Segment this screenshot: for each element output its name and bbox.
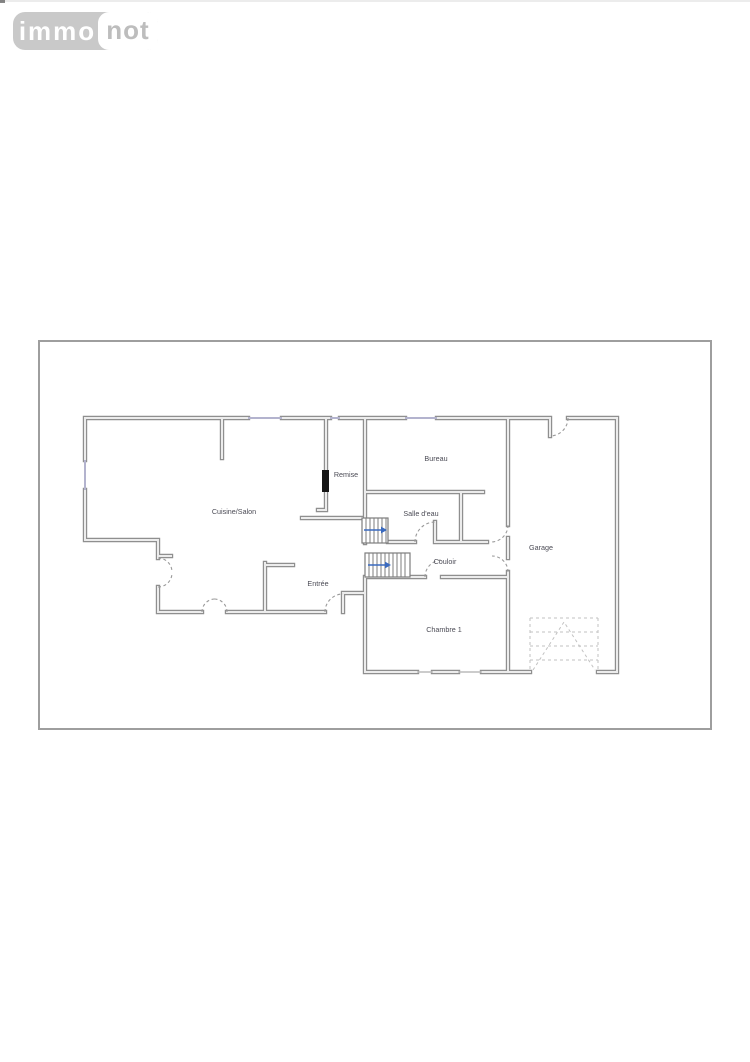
door-arc [415,522,435,542]
staircase-small [362,518,388,543]
floor-plan-drawing: Cuisine/Salon Remise Bureau Salle d'eau … [0,0,750,1062]
room-label-salle-deau: Salle d'eau [403,509,438,518]
door-arc [550,418,568,436]
room-label-couloir: Couloir [434,557,457,566]
garage-door-symbol [530,618,598,672]
room-label-garage: Garage [529,543,553,552]
flyer-page: immo not [0,0,750,1062]
window-lines [85,418,482,672]
room-label-entree: Entrée [307,579,328,588]
room-label-bureau: Bureau [424,454,447,463]
room-label-chambre-1: Chambre 1 [426,625,462,634]
room-label-cuisine-salon: Cuisine/Salon [212,507,256,516]
door-arc [325,594,343,612]
door-arc [492,556,508,572]
wall-panel-mark [322,470,329,492]
room-label-remise: Remise [334,470,358,479]
door-arc [491,525,508,542]
staircase-large [365,553,410,577]
